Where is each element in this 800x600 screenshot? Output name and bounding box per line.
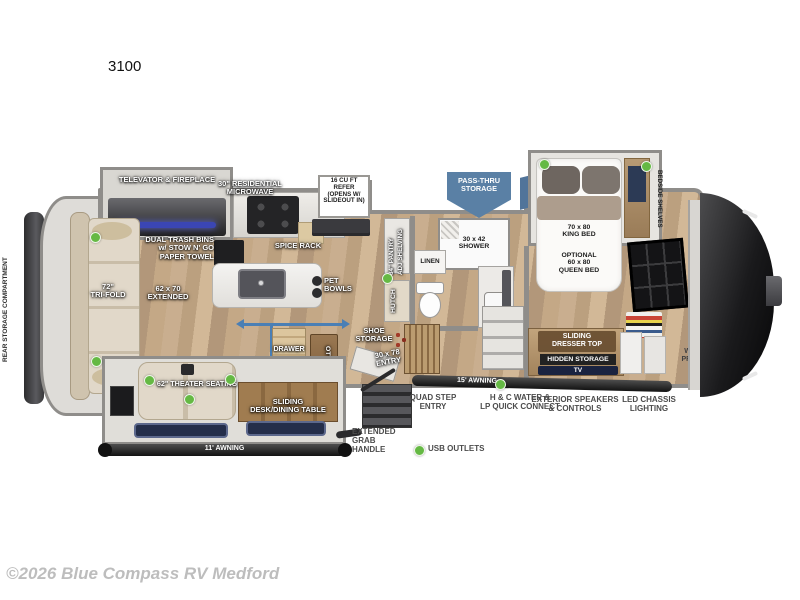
usb-outlet-dot (144, 375, 155, 386)
pet-bowl-1 (312, 276, 322, 286)
usb-outlet-dot (539, 159, 550, 170)
rear-storage-label: REAR STORAGE COMPARTMENT (2, 214, 16, 406)
bed-pillow-right (582, 166, 620, 194)
awning-11-cap-right (338, 443, 352, 457)
quad-step-unit (362, 384, 412, 428)
desk-mat (246, 421, 326, 436)
toilet-bowl (419, 292, 441, 318)
usb-outlet-dot (184, 394, 195, 405)
footer-copyright: ©2026 Blue Compass RV Medford (6, 564, 279, 584)
water-connect-label: H & C WATER & LP QUICK CONNECT (468, 394, 572, 412)
front-cap (700, 193, 774, 397)
bedroom-steps (482, 306, 524, 370)
pantry-label-line1: 84" PANTRY (388, 217, 397, 275)
refer-unit (312, 219, 370, 236)
bed-blanket (537, 196, 621, 220)
floorplan: REAR STORAGE COMPARTMENT TELEVATOR & FIR… (0, 0, 800, 600)
usb-outlet-dot (91, 356, 102, 367)
hidden-storage-bar (540, 354, 616, 365)
hitch-pin (766, 276, 782, 306)
awning-15-label: 15' AWNING (432, 376, 522, 386)
usb-outlet-dot (225, 374, 236, 385)
usb-outlet-dot (382, 273, 393, 284)
refer-label-box (318, 175, 370, 218)
usb-legend-label: USB OUTLETS (428, 445, 498, 454)
entry-closet-slats (404, 324, 440, 374)
sink-faucet (258, 280, 264, 286)
usb-outlet-dot (495, 379, 506, 390)
pantry-label: 84" PANTRY ADJ SHELVING (384, 217, 410, 275)
pet-bowl-2 (312, 288, 322, 298)
usb-outlet-dot (641, 161, 652, 172)
slide-arrow-horizontal (242, 323, 344, 326)
awning-11-cap-left (98, 443, 112, 457)
pantry-label-line2: ADJ SHELVING (397, 217, 406, 275)
shower-hatch-corner (441, 221, 459, 239)
slide-arrow-right-head (342, 319, 350, 329)
hutch-cabinet (384, 280, 410, 322)
theater-mat (134, 423, 228, 438)
theater-console (181, 364, 194, 375)
dresser-label-box (538, 331, 616, 352)
usb-outlet-dot (90, 232, 101, 243)
wd-cabinet-2 (644, 336, 666, 374)
awning-11-bar: 11' AWNING (103, 444, 346, 456)
usb-legend-dot (414, 445, 425, 456)
linen-cabinet (414, 250, 446, 274)
tv-bar (538, 366, 618, 375)
entry-shoes (394, 332, 408, 348)
wd-cabinet-1 (620, 332, 642, 374)
chassis-lighting-label: LED CHASSIS LIGHTING (616, 396, 682, 414)
bedroom-window (627, 238, 689, 313)
sofa-back (70, 212, 90, 400)
slide-arrow-left-head (236, 319, 244, 329)
bed-pillow-left (542, 166, 580, 194)
desk-dining-table (238, 382, 338, 422)
theater-tv-panel (110, 386, 134, 416)
stove-cooktop (247, 196, 299, 234)
awning-11-label: 11' AWNING (103, 445, 346, 453)
speakers-label: EXTERIOR SPEAKERS & CONTROLS (528, 396, 622, 414)
